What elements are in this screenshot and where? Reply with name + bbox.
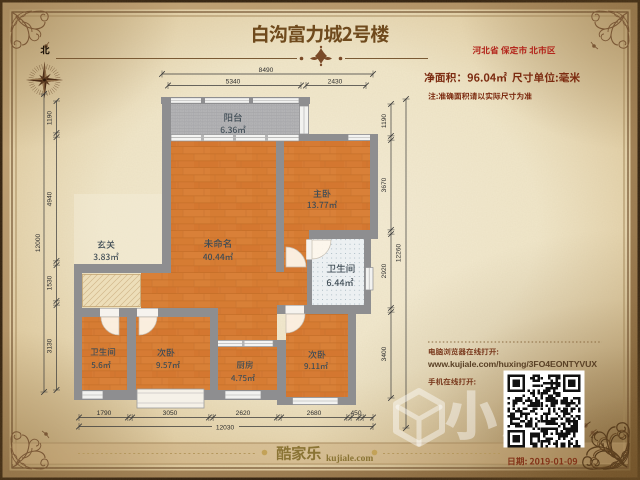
svg-text:5340: 5340	[226, 79, 241, 86]
svg-text:12030: 12030	[216, 425, 235, 432]
svg-text:3670: 3670	[381, 177, 388, 192]
svg-text:kujiale.com: kujiale.com	[326, 454, 373, 464]
svg-text:1790: 1790	[97, 410, 112, 417]
svg-text:2680: 2680	[307, 410, 322, 417]
svg-text:www.kujiale.com/huxing/3FO4EON: www.kujiale.com/huxing/3FO4EONTYVUX	[427, 359, 597, 369]
svg-text:3130: 3130	[47, 338, 54, 353]
svg-text:12000: 12000	[35, 234, 42, 253]
svg-text:2430: 2430	[328, 79, 343, 86]
svg-text:3400: 3400	[381, 346, 388, 361]
svg-text:450: 450	[350, 410, 361, 417]
svg-text:1530: 1530	[47, 275, 54, 290]
svg-text:12260: 12260	[396, 244, 403, 263]
svg-text:8490: 8490	[259, 67, 274, 74]
svg-text:2620: 2620	[236, 410, 251, 417]
svg-text:4940: 4940	[47, 191, 54, 206]
svg-text:1190: 1190	[47, 111, 54, 126]
svg-text:2920: 2920	[381, 263, 388, 278]
svg-text:1190: 1190	[381, 114, 388, 129]
svg-text:3050: 3050	[163, 410, 178, 417]
